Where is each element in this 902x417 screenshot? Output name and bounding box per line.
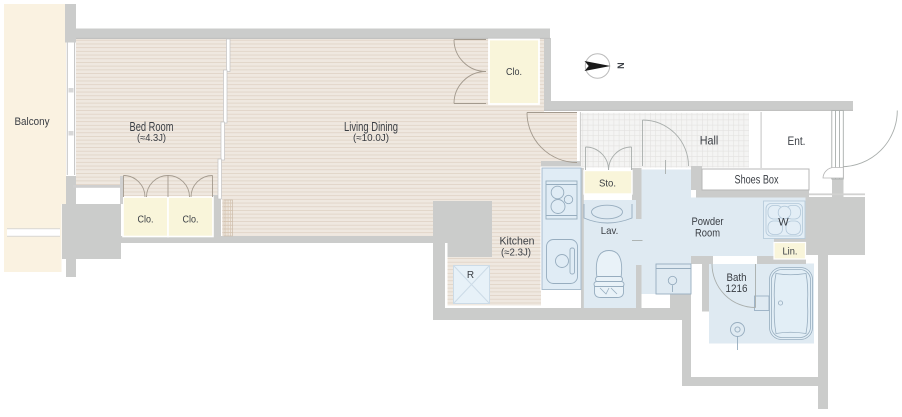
svg-text:Hall: Hall xyxy=(700,136,719,148)
svg-text:Balcony: Balcony xyxy=(15,116,50,128)
svg-text:Sto.: Sto. xyxy=(599,178,616,190)
svg-text:Lin.: Lin. xyxy=(783,247,798,258)
svg-text:W: W xyxy=(778,217,789,229)
svg-text:1216: 1216 xyxy=(726,283,748,295)
svg-text:Clo.: Clo. xyxy=(183,214,199,226)
svg-text:Shoes Box: Shoes Box xyxy=(735,175,779,187)
svg-text:R: R xyxy=(467,270,474,281)
svg-text:Clo.: Clo. xyxy=(138,214,154,226)
svg-text:Kitchen: Kitchen xyxy=(500,236,535,248)
svg-text:(≈10.0J): (≈10.0J) xyxy=(353,133,389,144)
svg-text:Powder: Powder xyxy=(692,216,724,228)
svg-text:(≈4.3J): (≈4.3J) xyxy=(137,133,166,144)
svg-text:N: N xyxy=(615,62,625,69)
svg-text:Ent.: Ent. xyxy=(788,136,806,148)
svg-text:(≈2.3J): (≈2.3J) xyxy=(501,248,531,259)
svg-text:Lav.: Lav. xyxy=(601,225,619,237)
svg-text:Clo.: Clo. xyxy=(506,66,522,78)
svg-text:Room: Room xyxy=(695,228,720,240)
